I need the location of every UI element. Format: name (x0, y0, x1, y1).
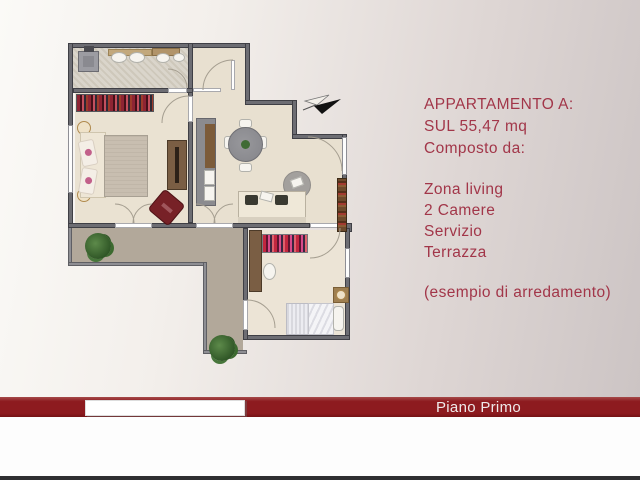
furnishing-note: (esempio di arredamento) (424, 284, 611, 302)
footer-background (0, 417, 640, 476)
slide: APPARTAMENTO A: SUL 55,47 mq Composto da… (0, 0, 640, 480)
composition-label: Composto da: (424, 140, 525, 158)
feature-terrazza: Terrazza (424, 244, 487, 262)
logo-placeholder-box (85, 400, 245, 416)
feature-camere: 2 Camere (424, 202, 495, 220)
feature-zona-living: Zona living (424, 181, 503, 199)
apartment-area: SUL 55,47 mq (424, 118, 527, 136)
north-arrow-icon (303, 95, 341, 114)
apartment-title: APPARTAMENTO A: (424, 96, 574, 114)
floor-label: Piano Primo (436, 399, 521, 416)
feature-servizio: Servizio (424, 223, 482, 241)
bottom-border-line (0, 476, 640, 480)
